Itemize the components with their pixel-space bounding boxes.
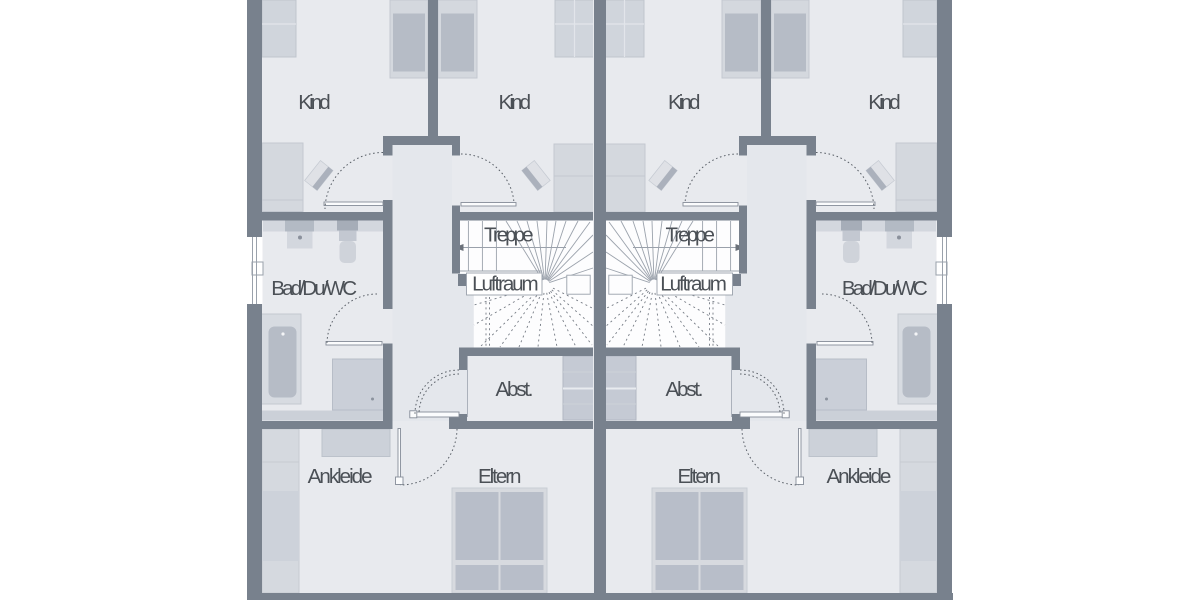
svg-text:Ankleide: Ankleide: [826, 465, 891, 488]
svg-text:Kind: Kind: [499, 91, 532, 114]
svg-text:Luftraum: Luftraum: [472, 273, 539, 296]
svg-text:Kind: Kind: [868, 91, 901, 114]
svg-text:Kind: Kind: [668, 91, 701, 114]
svg-text:Abst.: Abst.: [666, 378, 704, 401]
svg-text:Treppe: Treppe: [484, 224, 534, 247]
svg-text:Abst.: Abst.: [496, 378, 534, 401]
svg-text:Bad/Du/WC: Bad/Du/WC: [842, 277, 928, 300]
svg-text:Kind: Kind: [298, 91, 331, 114]
svg-text:Eltern: Eltern: [678, 465, 722, 488]
svg-text:Luftraum: Luftraum: [660, 273, 727, 296]
svg-text:Bad/Du/WC: Bad/Du/WC: [271, 277, 357, 300]
svg-text:Eltern: Eltern: [478, 465, 522, 488]
svg-text:Treppe: Treppe: [665, 224, 715, 247]
svg-text:Ankleide: Ankleide: [308, 465, 373, 488]
